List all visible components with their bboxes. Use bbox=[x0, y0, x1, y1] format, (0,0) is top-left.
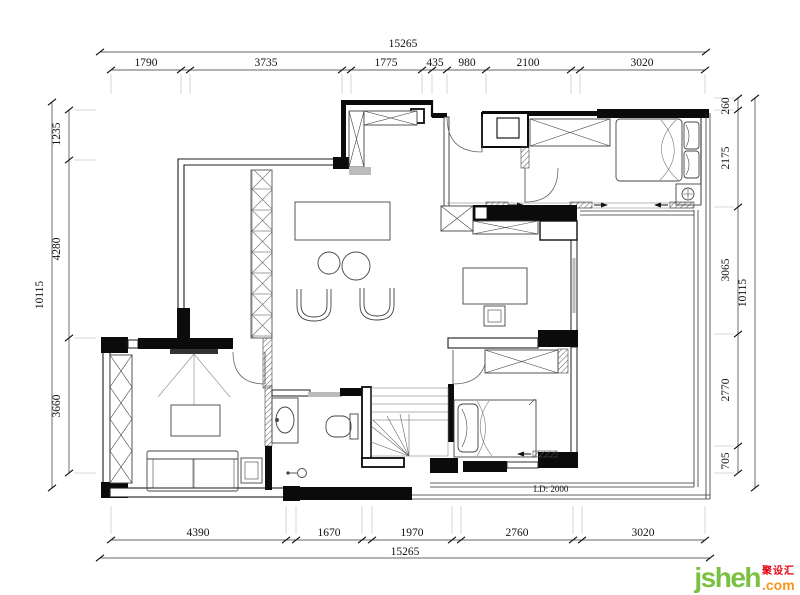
scale-note: LD: 2000 bbox=[534, 484, 569, 494]
sofa bbox=[147, 451, 238, 491]
dim-top-seg: 980 bbox=[458, 57, 476, 69]
stairs bbox=[371, 388, 448, 456]
dim-top-seg: 435 bbox=[426, 57, 444, 69]
logo-brand-text: jsheh bbox=[694, 564, 760, 592]
floor-plan-page: 15265 1790 3735 1775 435 980 2100 3020 4… bbox=[0, 0, 800, 595]
bed bbox=[454, 400, 536, 457]
dim-bottom-seg: 4390 bbox=[187, 527, 210, 539]
shower-drain bbox=[298, 469, 307, 478]
dim-bottom-seg: 2760 bbox=[506, 527, 529, 539]
bathroom-sliding-door bbox=[308, 392, 342, 397]
toilet bbox=[326, 416, 351, 437]
logo-cn-text: 聚设汇 bbox=[762, 567, 795, 577]
dim-left-seg: 4280 bbox=[51, 237, 63, 260]
dim-top-seg: 2100 bbox=[517, 57, 540, 69]
living-cabinet bbox=[251, 170, 272, 338]
armchair bbox=[297, 289, 331, 321]
dim-left-seg: 1235 bbox=[51, 122, 63, 145]
dim-top-seg: 1790 bbox=[135, 57, 158, 69]
projector-screen bbox=[170, 349, 218, 354]
dim-top-seg: 1775 bbox=[375, 57, 398, 69]
living-room-furniture bbox=[251, 170, 394, 338]
watermark-logo: jsheh 聚设汇 .com bbox=[694, 564, 795, 592]
dim-bottom-seg: 3020 bbox=[632, 527, 655, 539]
furniture bbox=[110, 111, 701, 491]
dim-right-seg: 2175 bbox=[720, 146, 732, 169]
bedroom1-furniture bbox=[530, 119, 701, 205]
dim-bottom-seg: 1670 bbox=[318, 527, 341, 539]
dim-bottom-overall: 15265 bbox=[391, 546, 420, 558]
entry-cabinets bbox=[349, 111, 417, 175]
bedroom2-furniture bbox=[110, 349, 262, 491]
dim-right-seg: 705 bbox=[720, 452, 732, 470]
kitchen-counter bbox=[441, 205, 577, 240]
study-furniture bbox=[463, 268, 527, 326]
stool bbox=[318, 252, 340, 274]
dim-bottom-seg: 1970 bbox=[401, 527, 424, 539]
living-table bbox=[295, 202, 390, 240]
bedroom2-door bbox=[233, 352, 265, 384]
dim-top-overall: 15265 bbox=[389, 38, 418, 50]
sliding-door-marks bbox=[486, 202, 694, 457]
bedroom3-door bbox=[453, 350, 487, 384]
dim-right-overall: 10115 bbox=[737, 279, 749, 308]
desk bbox=[463, 268, 527, 304]
floor-plan-drawing: 15265 1790 3735 1775 435 980 2100 3020 4… bbox=[0, 0, 800, 595]
bed bbox=[616, 119, 682, 181]
wardrobe bbox=[110, 355, 132, 483]
dim-right-seg: 3065 bbox=[720, 258, 732, 281]
right-dimension-chain: 260 2175 3065 2770 705 10115 bbox=[714, 95, 759, 491]
dim-left-seg: 3660 bbox=[51, 394, 63, 417]
armchair bbox=[360, 288, 394, 320]
left-dimension-chain: 1235 4280 3660 10115 bbox=[34, 99, 96, 491]
chair bbox=[484, 306, 505, 326]
bedroom3-furniture bbox=[454, 350, 558, 457]
logo-tld-text: .com bbox=[762, 578, 795, 592]
bathroom-fixtures bbox=[272, 398, 358, 478]
table bbox=[171, 405, 220, 436]
top-dimension-chain: 15265 1790 3735 1775 435 980 2100 3020 bbox=[96, 38, 710, 94]
pillow bbox=[458, 404, 478, 452]
sliding-panel bbox=[573, 258, 576, 313]
stool bbox=[342, 252, 370, 280]
bottom-dimension-chain: 4390 1670 1970 2760 3020 15265 bbox=[96, 506, 714, 561]
dim-top-seg: 3020 bbox=[631, 57, 654, 69]
dim-right-seg: 2770 bbox=[720, 378, 732, 401]
entry-door bbox=[447, 117, 482, 152]
dim-top-seg: 3735 bbox=[255, 57, 278, 69]
dim-left-overall: 10115 bbox=[34, 281, 46, 310]
bedroom1-door bbox=[525, 168, 558, 202]
dim-right-seg: 260 bbox=[720, 97, 732, 115]
